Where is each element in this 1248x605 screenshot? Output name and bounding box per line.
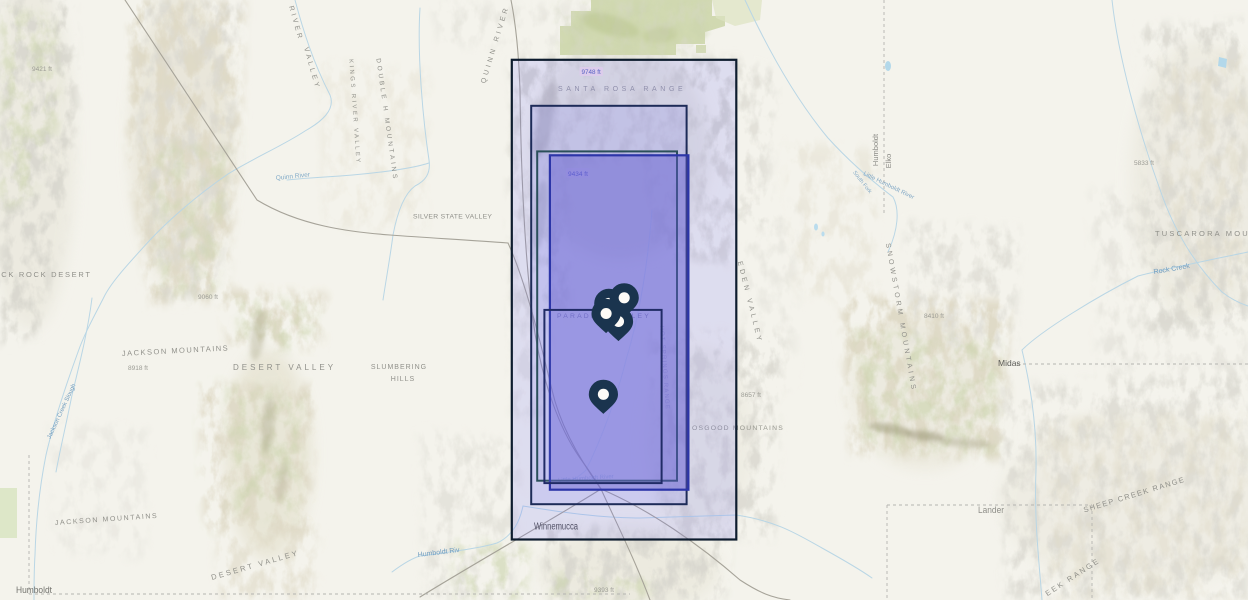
svg-text:9060 ft: 9060 ft (198, 294, 218, 301)
svg-text:SILVER STATE VALLEY: SILVER STATE VALLEY (413, 214, 492, 221)
svg-text:Midas: Midas (998, 358, 1021, 368)
svg-text:8657 ft: 8657 ft (741, 392, 761, 399)
svg-text:Humboldt: Humboldt (16, 585, 52, 596)
svg-text:5833 ft: 5833 ft (1134, 160, 1154, 167)
svg-text:SLUMBERING: SLUMBERING (371, 364, 427, 371)
svg-text:Lander: Lander (978, 505, 1004, 515)
svg-text:Elko: Elko (884, 154, 893, 169)
svg-text:9393 ft: 9393 ft (594, 587, 614, 594)
svg-text:8410 ft: 8410 ft (924, 313, 944, 320)
svg-text:TUSCARORA MOUN: TUSCARORA MOUN (1155, 229, 1248, 238)
svg-text:BLACK ROCK DESERT: BLACK ROCK DESERT (0, 270, 92, 279)
svg-text:HILLS: HILLS (391, 376, 415, 383)
svg-text:Humboldt: Humboldt (871, 133, 880, 166)
svg-text:9421 ft: 9421 ft (32, 66, 52, 73)
svg-text:DESERT VALLEY: DESERT VALLEY (233, 363, 336, 372)
svg-text:8918 ft: 8918 ft (128, 365, 148, 372)
